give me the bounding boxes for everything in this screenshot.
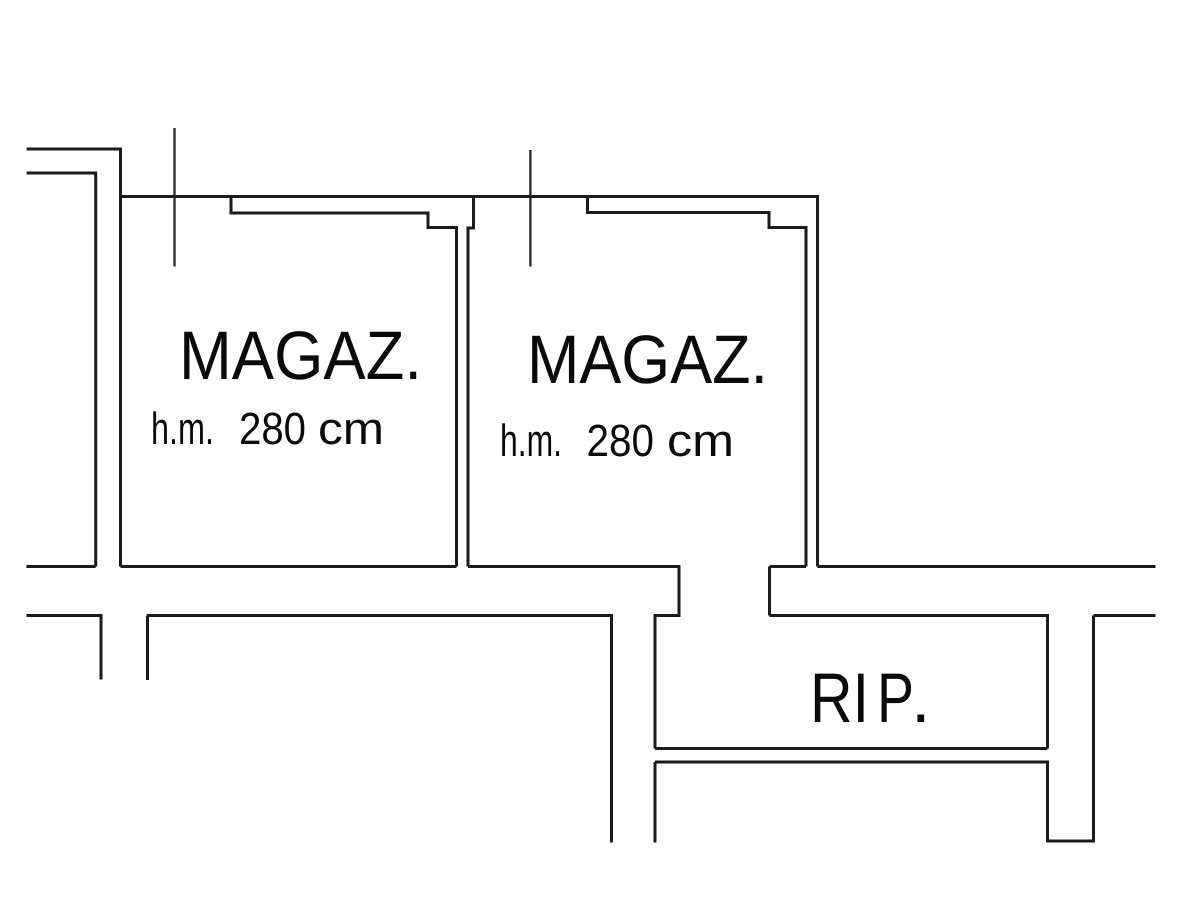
- svg-text:280: 280: [587, 415, 655, 466]
- svg-text:.: .: [911, 658, 931, 737]
- svg-text:P: P: [877, 658, 914, 737]
- svg-text:280: 280: [239, 403, 306, 454]
- svg-text:cm: cm: [667, 415, 734, 466]
- svg-text:h.m.: h.m.: [500, 415, 562, 466]
- svg-text:MAGAZ.: MAGAZ.: [527, 321, 768, 398]
- svg-text:MAGAZ.: MAGAZ.: [179, 317, 422, 394]
- svg-text:h.m.: h.m.: [151, 403, 214, 454]
- svg-text:RI: RI: [810, 658, 869, 737]
- svg-text:cm: cm: [318, 403, 384, 454]
